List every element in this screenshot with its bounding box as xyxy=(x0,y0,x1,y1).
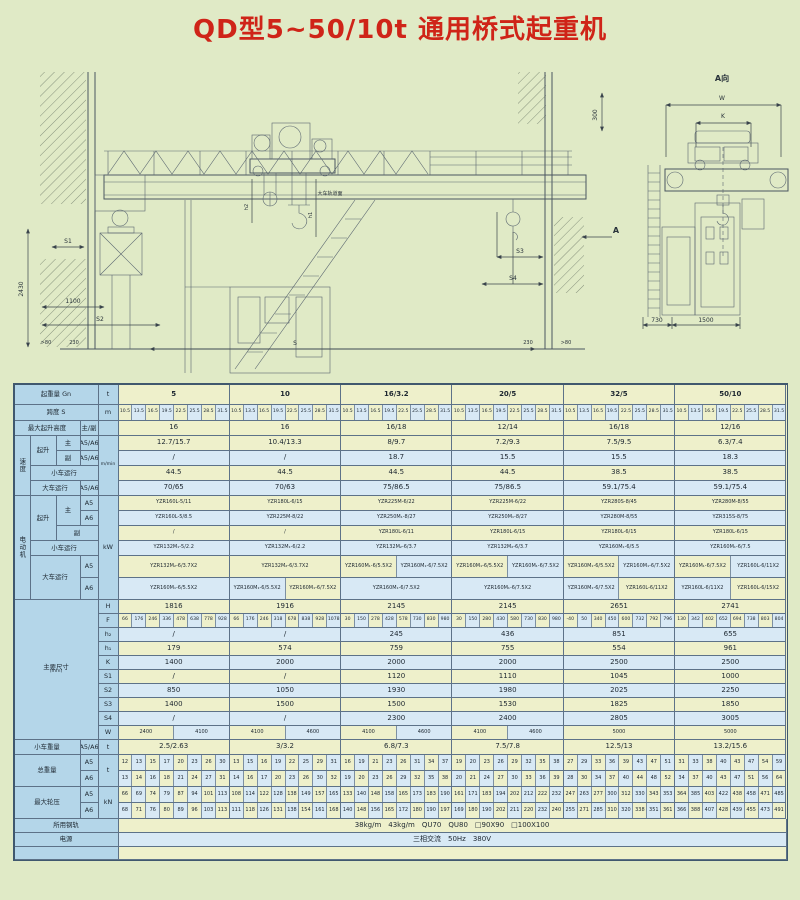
cell-value: 157 xyxy=(312,787,326,802)
cell-value: 31 xyxy=(410,755,424,770)
spec-cell: 38.5 xyxy=(675,466,786,481)
cell-value: 14 xyxy=(131,771,145,786)
cell-value: 13.5 xyxy=(131,405,145,420)
spec-cell: 16 xyxy=(230,421,341,436)
cell-value: 402 xyxy=(702,614,716,627)
cell-value: 796 xyxy=(660,614,674,627)
cell-value: 197 xyxy=(438,803,452,818)
cell-value: 15 xyxy=(243,755,257,770)
spec-cell: 10 xyxy=(230,385,341,405)
spec-cell: 24004100 xyxy=(119,726,230,740)
row-blank xyxy=(15,847,787,860)
runway-rail xyxy=(108,227,134,233)
cell-value: 79 xyxy=(159,787,173,802)
cell-value: YZR225M-6/22 xyxy=(341,496,451,510)
cell-value: 113 xyxy=(215,787,229,802)
dim-k: K xyxy=(721,113,726,120)
row-power: 电源 三相交流 50Hz 380V xyxy=(15,833,787,847)
cell-value: 804 xyxy=(772,614,786,627)
cell-value: YZR132M₁-6/2.2 xyxy=(230,541,340,555)
spec-cell: 8/9.7 xyxy=(341,436,452,451)
cell-value: 33 xyxy=(591,755,605,770)
spec-cell: YZR180L-6/15 xyxy=(564,526,675,541)
spec-cell: 70/65 xyxy=(119,481,230,496)
dim-s1: S1 xyxy=(64,238,72,245)
cell-value: YZR160M₁-6/7.5X2 xyxy=(564,578,619,599)
cell-value: 458 xyxy=(744,787,758,802)
cell-value: 19.5 xyxy=(159,405,173,420)
dimension-annotations: 2430 S1 1100 S2 230 >80 S 230 >80 S3 S4 … xyxy=(18,93,620,349)
spec-cell: 2025 xyxy=(564,684,675,698)
spec-cell: 50/10 xyxy=(675,385,786,405)
cell-value: 172 xyxy=(396,803,410,818)
spec-cell: 140148156165172180190197 xyxy=(341,803,452,819)
cell-value: 285 xyxy=(591,803,605,818)
cell-value: 430 xyxy=(493,614,507,627)
spec-cell: 111118126131138154161168 xyxy=(230,803,341,819)
spec-cell: 10.513.516.519.522.525.528.531.5 xyxy=(230,405,341,421)
cell-value: 24 xyxy=(479,771,493,786)
cell-value: 122 xyxy=(257,787,271,802)
cell-value: 114 xyxy=(243,787,257,802)
cell-value: 37 xyxy=(438,755,452,770)
dim-s3: S3 xyxy=(516,248,524,255)
spec-cell: 2830343740444852 xyxy=(564,771,675,787)
cell-value: 16 xyxy=(257,755,271,770)
dim-h2: h2 xyxy=(244,204,250,210)
spec-cell: 661762463186788389281078 xyxy=(230,614,341,628)
cell-value: YZR160M₁-6/7.5X2 xyxy=(285,578,341,599)
cell-value: 138 xyxy=(285,803,299,818)
spec-cell: YZR180L-6/15 xyxy=(230,496,341,511)
cell-value: 40 xyxy=(618,771,632,786)
spec-cell: YZR250M₁-8/27 xyxy=(341,511,452,526)
group-speed: 速度 起升 主 A5/A6 副 A5/A6 小车运行 大车运行 A5 xyxy=(15,436,787,496)
cell-value: 212 xyxy=(521,787,535,802)
cell-value: 50 xyxy=(577,614,591,627)
label-aux: 副 xyxy=(57,526,99,541)
spec-cell: YZR280M-8/55 xyxy=(564,511,675,526)
label-duty: A5 xyxy=(81,496,99,511)
cell-value: 338 xyxy=(632,803,646,818)
cell-value: 22.5 xyxy=(173,405,187,420)
spec-cell: 961 xyxy=(675,642,786,656)
cell-value: 4600 xyxy=(396,726,452,739)
cell-value: YZR132M₁-5/2.2 xyxy=(119,541,229,555)
spec-cell: 12/16 xyxy=(675,421,786,436)
cell-value: 101 xyxy=(201,787,215,802)
cell-value: 43 xyxy=(716,771,730,786)
cell-value: 35 xyxy=(535,755,549,770)
cell-value: 366 xyxy=(675,803,688,818)
cell-value: 300 xyxy=(605,787,619,802)
cell-value: 202 xyxy=(493,803,507,818)
cell-value: 422 xyxy=(716,787,730,802)
spec-cell: 1314161821242731 xyxy=(119,771,230,787)
cab xyxy=(230,287,330,373)
row-label: 小车重量 xyxy=(15,740,81,755)
spec-cell: YZR160M₁-6/5.5X2YZR160M₁-6/7.5X2 xyxy=(230,578,341,600)
cell-value: 22.5 xyxy=(507,405,521,420)
cell-value: 28.5 xyxy=(535,405,549,420)
cell-value: / xyxy=(119,526,229,540)
cell-value: 12 xyxy=(119,755,132,770)
cell-value: 17 xyxy=(159,755,173,770)
end-view-hook xyxy=(717,205,728,225)
cell-value: 44 xyxy=(632,771,646,786)
spec-cell: YZR160M₁-6/7.5X2 xyxy=(341,578,452,600)
cell-value: 13 xyxy=(131,755,145,770)
left-wall-face xyxy=(88,72,95,349)
spec-cell: 2145 xyxy=(452,600,563,614)
label-hoist: 起升 xyxy=(31,436,57,466)
spec-cell: 666974798794101113 xyxy=(119,787,230,803)
cell-value: 31.5 xyxy=(326,405,340,420)
spec-cell: / xyxy=(230,451,341,466)
label-main: 主 xyxy=(57,436,81,451)
spec-cell: 1050 xyxy=(230,684,341,698)
cell-value: 140 xyxy=(341,803,354,818)
girder-box-section xyxy=(695,203,740,315)
cell-value: 108 xyxy=(230,787,243,802)
spec-cell: 2400 xyxy=(452,712,563,726)
cell-value: 31.5 xyxy=(660,405,674,420)
cell-value: 29 xyxy=(396,771,410,786)
cell-value: 471 xyxy=(758,787,772,802)
spec-cell: 169180190202211220232240 xyxy=(452,803,563,819)
spec-cell: YZR225M-6/22 xyxy=(452,496,563,511)
cell-value: 190 xyxy=(424,803,438,818)
spec-cell: 12.7/15.7 xyxy=(119,436,230,451)
cell-value: YZR160L-5/8.5 xyxy=(119,511,229,525)
cell-value: 36 xyxy=(535,771,549,786)
cell-value: 30 xyxy=(452,614,465,627)
spec-cell: YZR132M₁-5/2.2 xyxy=(119,541,230,556)
cell-value: 277 xyxy=(591,787,605,802)
label-duty: A6 xyxy=(81,771,99,787)
cell-value: 47 xyxy=(730,771,744,786)
spec-cell: 1920232629323538 xyxy=(452,755,563,771)
cell-value: 161 xyxy=(312,803,326,818)
cell-value: 74 xyxy=(145,787,159,802)
cell-value: 148 xyxy=(354,803,368,818)
cell-value: 69 xyxy=(131,787,145,802)
group-label: 总重量 xyxy=(15,755,81,787)
cell-value: 76 xyxy=(145,803,159,818)
cell-value: 64 xyxy=(772,771,786,786)
label-hoist: 起升 xyxy=(31,496,57,541)
main-hook-block xyxy=(263,173,310,229)
cell-value: YZR180L-6/15 xyxy=(675,526,785,540)
cell-value: 830 xyxy=(424,614,438,627)
cell-value: 31 xyxy=(215,771,229,786)
spec-cell: 44.5 xyxy=(230,466,341,481)
row-span: 跨度 S m 10.513.516.519.522.525.528.531.5 … xyxy=(15,405,787,421)
cell-value: 22.5 xyxy=(730,405,744,420)
spec-cell: 2729333639434751 xyxy=(564,755,675,771)
cell-value: 66 xyxy=(119,614,132,627)
spec-cell: / xyxy=(230,628,341,642)
spec-cell: YZR180L-6/11 xyxy=(341,526,452,541)
spec-cell: / xyxy=(119,451,230,466)
cell-value: 21 xyxy=(173,771,187,786)
cell-value: 87 xyxy=(173,787,187,802)
cell-value: 133 xyxy=(341,787,354,802)
cell-value: 26 xyxy=(298,771,312,786)
group-total-weight: 总重量 A5 A6 t 1213151720232630 13151619222… xyxy=(15,755,787,787)
cell-value: 16.5 xyxy=(702,405,716,420)
spec-cell: 10.513.516.519.522.525.528.531.5 xyxy=(119,405,230,421)
row-label: 跨度 S xyxy=(15,405,99,421)
cell-value: 47 xyxy=(646,755,660,770)
cell-value: 30 xyxy=(577,771,591,786)
end-truck-wheel xyxy=(112,210,128,226)
cell-value: 33 xyxy=(688,755,702,770)
cell-value: 31 xyxy=(326,755,340,770)
spec-cell: 12.5/13 xyxy=(564,740,675,755)
cell-value: YZR280M-8/55 xyxy=(564,511,674,525)
cell-value: 31.5 xyxy=(438,405,452,420)
cell-value: 20 xyxy=(271,771,285,786)
spec-cell: 3005 xyxy=(675,712,786,726)
cell-value: 165 xyxy=(396,787,410,802)
cell-value: YZR160M₁-6/7.5X2 xyxy=(396,556,452,577)
cell-value: YZR132M₂-6/3.7X2 xyxy=(230,556,340,577)
spec-cell: YZR160M₁-6/7.5X2YZR160L-6/11X2 xyxy=(675,556,786,578)
cell-value: 439 xyxy=(730,803,744,818)
cell-value: 180 xyxy=(465,803,479,818)
spec-cell: 70/63 xyxy=(230,481,341,496)
spec-cell: 75/86.5 xyxy=(341,481,452,496)
spec-cell: 44.5 xyxy=(452,466,563,481)
unit-cell: m/min xyxy=(99,436,119,496)
cell-value: 43 xyxy=(730,755,744,770)
spec-cell: 20/5 xyxy=(452,385,563,405)
spec-cell: 38.5 xyxy=(564,466,675,481)
cell-value: / xyxy=(230,526,340,540)
dim-730: 730 xyxy=(651,317,663,324)
spec-cell: / xyxy=(230,526,341,541)
cell-value: 20 xyxy=(173,755,187,770)
row-label: 所用钢轨 xyxy=(15,819,119,833)
end-view-title: A向 xyxy=(715,73,729,83)
spec-cell: YZR160M₁-6/5.5X2 xyxy=(119,578,230,600)
cell-value: 330 xyxy=(632,787,646,802)
cell-value: 23 xyxy=(187,755,201,770)
cell-value: YZR160M₁-6/7.5X2 xyxy=(507,556,563,577)
spec-cell: 15.5 xyxy=(452,451,563,466)
blank-data-cell xyxy=(119,847,787,860)
cell-value: YZR160M₁-6/7.5X2 xyxy=(675,556,730,577)
end-section-view: A向 W K 730 1500 xyxy=(643,73,788,329)
spec-cell: 108114122128138149157165 xyxy=(230,787,341,803)
cell-value: 10.5 xyxy=(119,405,132,420)
cell-value: 113 xyxy=(215,803,229,818)
spec-cell: 10.513.516.519.522.525.528.531.5 xyxy=(564,405,675,421)
cell-value: 118 xyxy=(243,803,257,818)
cell-value: 10.5 xyxy=(564,405,577,420)
cell-value: 140 xyxy=(354,787,368,802)
dim-1500: 1500 xyxy=(698,317,713,324)
spec-cell: 2300 xyxy=(341,712,452,726)
cell-value: 343 xyxy=(646,787,660,802)
cell-value: 22.5 xyxy=(618,405,632,420)
cell-value: 180 xyxy=(410,803,424,818)
cell-value: 678 xyxy=(285,614,299,627)
cell-value: 22.5 xyxy=(396,405,410,420)
cell-value: 40 xyxy=(702,771,716,786)
cell-value: 23 xyxy=(368,771,382,786)
cell-value: 28.5 xyxy=(312,405,326,420)
label-trolley-travel: 小车运行 xyxy=(31,541,99,556)
dim-230-left: 230 xyxy=(69,340,79,346)
spec-cell: 1400 xyxy=(119,656,230,670)
cell-value: 154 xyxy=(298,803,312,818)
group-wheel-load: 最大轮压 A5 A6 kN 666974798794101113 1081141… xyxy=(15,787,787,819)
cell-value: 38 xyxy=(438,771,452,786)
cell-value: 126 xyxy=(257,803,271,818)
row-capacity: 起重量 Gn t 5 10 16/3.2 20/5 32/5 50/10 xyxy=(15,385,787,405)
spec-cell: 436 xyxy=(452,628,563,642)
cell-value: 342 xyxy=(688,614,702,627)
cell-value: 2400 xyxy=(119,726,174,739)
cell-value: 68 xyxy=(119,803,132,818)
cell-value: 310 xyxy=(605,803,619,818)
cell-value: 13.5 xyxy=(688,405,702,420)
label-duty: A5 xyxy=(81,556,99,578)
dim-300: 300 xyxy=(592,109,599,121)
left-wall-hatch xyxy=(40,72,86,204)
cell-value: 149 xyxy=(298,787,312,802)
spec-cell: 41004600 xyxy=(341,726,452,740)
cell-value: YZR160M₁-6/5.5X2 xyxy=(452,556,507,577)
cell-value: 29 xyxy=(312,755,326,770)
cell-value: 89 xyxy=(173,803,187,818)
cell-value: 211 xyxy=(507,803,521,818)
spec-cell: 66176246336478638778928 xyxy=(119,614,230,628)
cell-value: 37 xyxy=(688,771,702,786)
end-view-side-box xyxy=(742,199,764,229)
spec-cell: 44.5 xyxy=(119,466,230,481)
cell-value: 32 xyxy=(410,771,424,786)
spec-cell: 44.5 xyxy=(341,466,452,481)
cell-value: 16 xyxy=(145,771,159,786)
cell-value: 478 xyxy=(173,614,187,627)
cell-value: 21 xyxy=(465,771,479,786)
end-view-cab-inner xyxy=(667,237,690,305)
cell-value: 59 xyxy=(772,755,786,770)
cell-value: 16 xyxy=(243,771,257,786)
spec-cell: 7.5/7.8 xyxy=(452,740,563,755)
group-label-dimensions: 主要尺寸 (mm) xyxy=(15,600,99,740)
cell-value: YZR160L-6/11X2 xyxy=(618,578,674,599)
cell-value: 232 xyxy=(549,787,563,802)
cell-value: 19 xyxy=(271,755,285,770)
dim-name: S3 xyxy=(99,698,119,712)
cell-value: 652 xyxy=(716,614,730,627)
dim-gt80-right: >80 xyxy=(561,340,572,346)
spec-cell: 16/18 xyxy=(341,421,452,436)
label-main: 主 xyxy=(57,496,81,526)
spec-cell: 1400 xyxy=(119,698,230,712)
right-wall-hatch-lower xyxy=(554,217,584,293)
spec-cell: 1000 xyxy=(675,670,786,684)
cell-value: 336 xyxy=(159,614,173,627)
cell-value: 246 xyxy=(145,614,159,627)
right-wall-face xyxy=(545,72,552,349)
spec-cell: 30150280430580730830980 xyxy=(452,614,563,628)
spec-cell: 59.1/75.4 xyxy=(675,481,786,496)
cell-value: 35 xyxy=(424,771,438,786)
cell-value: 438 xyxy=(730,787,744,802)
cell-value: 340 xyxy=(591,614,605,627)
spec-cell: 7.2/9.3 xyxy=(452,436,563,451)
cell-value: 24 xyxy=(187,771,201,786)
spec-cell: 41004600 xyxy=(230,726,341,740)
spec-cell: / xyxy=(119,526,230,541)
page-title: QD型5~50/10t 通用桥式起重机 xyxy=(0,0,800,47)
bridge-girder xyxy=(104,175,586,199)
cell-value: YZR250M₁-8/27 xyxy=(341,511,451,525)
spec-cell: 16/18 xyxy=(564,421,675,436)
spec-cell: 10.513.516.519.522.525.528.531.5 xyxy=(341,405,452,421)
cell-value: 246 xyxy=(257,614,271,627)
spec-cell: 255271285310320338351361 xyxy=(564,803,675,819)
label-duty: A6 xyxy=(81,803,99,819)
cell-value: 578 xyxy=(396,614,410,627)
cell-value: 428 xyxy=(382,614,396,627)
spec-cell: 2000 xyxy=(230,656,341,670)
cell-value: YZR280S-8/45 xyxy=(564,496,674,510)
cell-value: 13.5 xyxy=(354,405,368,420)
spec-table: 起重量 Gn t 5 10 16/3.2 20/5 32/5 50/10 跨度 … xyxy=(13,383,788,861)
cell-value: 271 xyxy=(577,803,591,818)
cell-value: 580 xyxy=(507,614,521,627)
cell-value: 361 xyxy=(660,803,674,818)
cell-value: 20 xyxy=(452,771,465,786)
cell-value: 33 xyxy=(521,771,535,786)
cell-value: 10.5 xyxy=(675,405,688,420)
group-label: 最大轮压 xyxy=(15,787,81,819)
cell-value: 4600 xyxy=(285,726,341,739)
spec-cell: 2741 xyxy=(675,600,786,614)
cell-value: YZR315S-8/75 xyxy=(675,511,785,525)
cell-value: 19.5 xyxy=(271,405,285,420)
row-rail: 所用钢轨 38kg/m 43kg/m QU70 QU80 □90X90 □100… xyxy=(15,819,787,833)
cell-value: 4600 xyxy=(507,726,563,739)
cell-value: 54 xyxy=(758,755,772,770)
dim-name: F xyxy=(99,614,119,628)
spec-cell: / xyxy=(230,670,341,684)
cell-value: 194 xyxy=(493,787,507,802)
spec-cell: 12/14 xyxy=(452,421,563,436)
spec-cell: YZR280S-8/45 xyxy=(564,496,675,511)
spec-cell: YZR225M-8/22 xyxy=(230,511,341,526)
end-view-buffer-right xyxy=(770,172,786,188)
cell-value: YZR160M₁-6/5.5 xyxy=(564,541,674,555)
spec-cell: 16/3.2 xyxy=(341,385,452,405)
spec-cell: 1045 xyxy=(564,670,675,684)
cell-value: 16.5 xyxy=(257,405,271,420)
cell-value: 28 xyxy=(564,771,577,786)
cell-value: 161 xyxy=(452,787,465,802)
spec-cell: 1930 xyxy=(341,684,452,698)
cell-value: 31 xyxy=(675,755,688,770)
cell-value: 23 xyxy=(382,755,396,770)
spec-cell: 2.5/2.63 xyxy=(119,740,230,755)
dim-w: W xyxy=(719,95,725,102)
spec-cell: 2651 xyxy=(564,600,675,614)
